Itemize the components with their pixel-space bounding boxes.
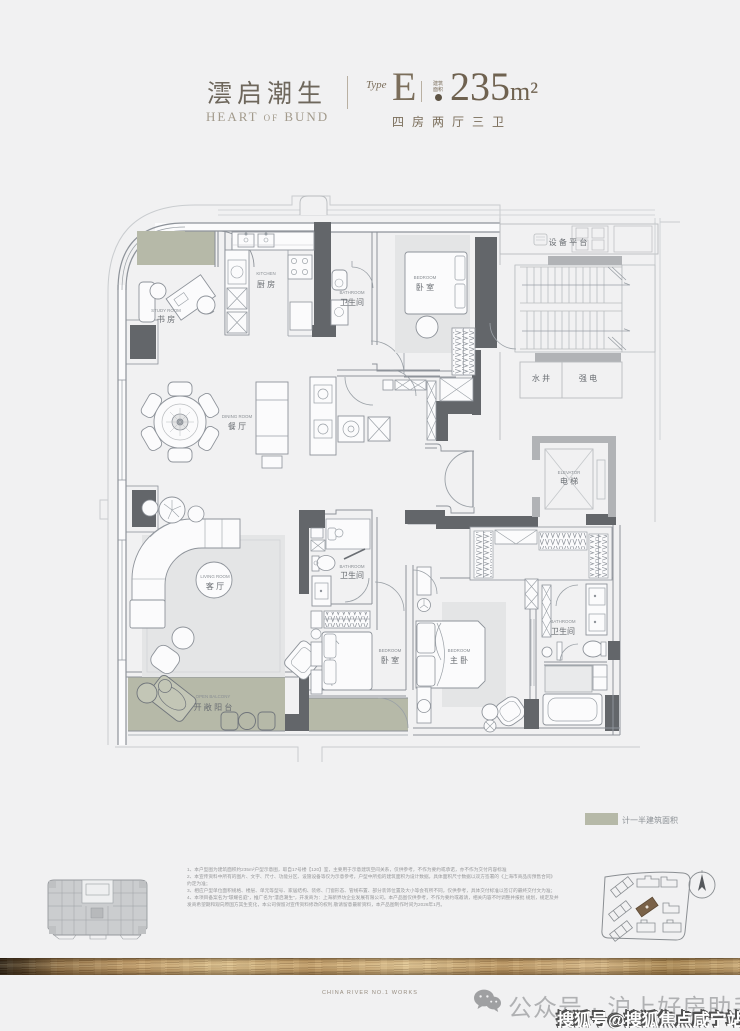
svg-text:主 卧: 主 卧 (450, 655, 468, 665)
svg-text:强 电: 强 电 (579, 373, 597, 383)
svg-text:设 备 平 台: 设 备 平 台 (549, 237, 588, 247)
svg-text:BATHROOM: BATHROOM (550, 619, 575, 624)
svg-text:LIVING ROOM: LIVING ROOM (200, 574, 230, 579)
svg-text:厨 房: 厨 房 (257, 279, 275, 289)
svg-text:卫生间: 卫生间 (340, 297, 364, 307)
svg-text:KITCHEN: KITCHEN (256, 271, 275, 276)
svg-text:BEDROOM: BEDROOM (379, 648, 402, 653)
svg-text:BATHROOM: BATHROOM (339, 290, 364, 295)
svg-text:BATHROOM: BATHROOM (339, 564, 364, 569)
svg-text:DINING ROOM: DINING ROOM (222, 414, 253, 419)
svg-text:水 井: 水 井 (532, 373, 550, 383)
svg-text:卫生间: 卫生间 (340, 570, 364, 580)
svg-text:ELEVATOR: ELEVATOR (558, 470, 581, 475)
svg-text:BEDROOM: BEDROOM (414, 275, 437, 280)
svg-text:客 厅: 客 厅 (206, 581, 224, 591)
svg-text:开 敞 阳 台: 开 敞 阳 台 (194, 702, 233, 712)
svg-text:卧 室: 卧 室 (381, 655, 399, 665)
svg-text:卧 室: 卧 室 (416, 282, 434, 292)
svg-text:卫生间: 卫生间 (551, 626, 575, 636)
svg-text:餐 厅: 餐 厅 (228, 422, 246, 431)
svg-text:电 梯: 电 梯 (560, 476, 578, 486)
svg-text:STUDY ROOM: STUDY ROOM (151, 308, 181, 313)
svg-text:书 房: 书 房 (157, 314, 175, 324)
svg-text:BEDROOM: BEDROOM (448, 648, 471, 653)
svg-text:OPEN BALCONY: OPEN BALCONY (196, 694, 231, 699)
